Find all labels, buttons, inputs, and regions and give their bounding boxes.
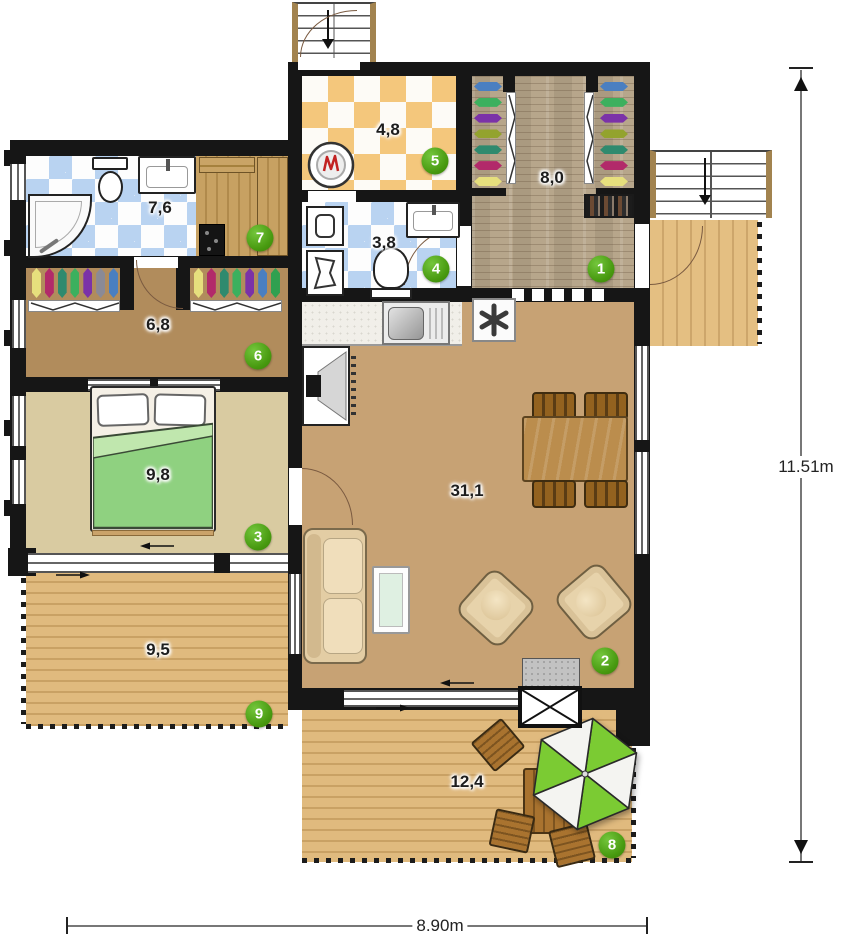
stove-box-icon bbox=[518, 686, 582, 728]
wc-sink-icon bbox=[406, 202, 460, 238]
shoe-rack-icon bbox=[584, 194, 634, 218]
sink-drainer bbox=[429, 308, 445, 339]
window-bedroom-1 bbox=[12, 396, 26, 446]
dimension-height-label: 11.51m bbox=[774, 456, 837, 478]
area-label-living: 31,1 bbox=[450, 481, 483, 501]
dimension-tick-right bbox=[646, 917, 648, 934]
area-label-bedroom: 9,8 bbox=[146, 465, 170, 485]
room-badge-2: 2 bbox=[592, 648, 619, 675]
slide-arrow-right-icon bbox=[56, 570, 90, 580]
wall-pilaster bbox=[4, 420, 12, 436]
closet-hangers bbox=[194, 268, 280, 298]
toilet-icon bbox=[98, 171, 123, 203]
folding-door-icon bbox=[506, 92, 516, 184]
dimension-arrow-down-icon bbox=[794, 840, 808, 861]
slide-arrow-left-icon bbox=[440, 678, 474, 688]
area-label-bathroom: 7,6 bbox=[148, 198, 172, 218]
wall-pilaster bbox=[4, 500, 12, 516]
toilet-tank-icon bbox=[92, 157, 128, 170]
laundry-icon bbox=[308, 252, 342, 294]
dimension-cap-top bbox=[789, 67, 813, 69]
closet-stub-left bbox=[120, 256, 134, 310]
kitchen-sink-icon bbox=[382, 301, 450, 345]
dimension-line-horizontal bbox=[66, 925, 648, 927]
area-label-hall: 8,0 bbox=[540, 168, 564, 188]
window-terrace-west bbox=[289, 574, 301, 654]
stove-icon bbox=[472, 298, 516, 342]
room-badge-1: 1 bbox=[588, 256, 615, 283]
faucet-icon bbox=[432, 205, 436, 215]
sliding-door-living bbox=[344, 690, 522, 707]
area-label-wc: 3,8 bbox=[372, 233, 396, 253]
area-label-terrace-south: 12,4 bbox=[450, 772, 483, 792]
sink-icon bbox=[138, 156, 196, 194]
fireplace-vent bbox=[351, 356, 356, 418]
wall-pilaster bbox=[4, 240, 12, 256]
door-opening-bedroom bbox=[289, 468, 302, 525]
hall-closet-stub-left bbox=[503, 62, 515, 92]
faucet-icon bbox=[166, 159, 170, 171]
folding-door-icon bbox=[584, 92, 594, 184]
hall-closet-bottom-left bbox=[472, 188, 506, 196]
bed-footboard bbox=[92, 530, 214, 536]
porch-down-arrow-icon bbox=[704, 158, 706, 202]
bed-icon bbox=[90, 386, 216, 532]
room-badge-5: 5 bbox=[422, 148, 449, 175]
stairs-porch bbox=[650, 150, 772, 218]
floor-plan: 8,0 31,1 9,8 3,8 4,8 6,8 7,6 12,4 9,5 1 … bbox=[0, 0, 850, 934]
fireplace-icon bbox=[302, 346, 350, 426]
window-living-1 bbox=[635, 346, 649, 440]
area-label-hallway: 6,8 bbox=[146, 315, 170, 335]
wall-bed-window-mid bbox=[214, 553, 230, 573]
pass-through-opening bbox=[512, 289, 608, 301]
window-bathroom bbox=[10, 164, 26, 200]
entrance-door-opening bbox=[635, 224, 649, 288]
dimension-arrow-up-icon bbox=[794, 70, 808, 91]
window-bedroom-2 bbox=[12, 460, 26, 504]
wc-toilet-icon bbox=[373, 247, 409, 289]
laundry-basket-icon bbox=[306, 250, 344, 296]
sauna-stove-icon bbox=[307, 141, 355, 189]
room-badge-9: 9 bbox=[246, 701, 273, 728]
room-badge-4: 4 bbox=[423, 256, 450, 283]
room-badge-7: 7 bbox=[247, 225, 274, 252]
sauna-bench-top bbox=[199, 157, 255, 173]
sauna-exterior-door bbox=[298, 58, 360, 70]
wardrobe-hangers bbox=[600, 82, 628, 186]
wc-toilet-tank-icon bbox=[370, 288, 412, 299]
area-label-terrace-west: 9,5 bbox=[146, 640, 170, 660]
room-badge-8: 8 bbox=[599, 832, 626, 859]
wardrobe-hangers bbox=[474, 82, 502, 186]
sofa-icon bbox=[303, 528, 367, 664]
window-hallway bbox=[12, 300, 26, 348]
umbrella-icon bbox=[525, 714, 645, 834]
room-badge-3: 3 bbox=[245, 524, 272, 551]
sauna-heater-icon bbox=[199, 224, 225, 256]
door-opening-sauna bbox=[308, 191, 356, 202]
dimension-width-label: 8.90m bbox=[412, 915, 467, 934]
slide-arrow-right-icon bbox=[376, 703, 410, 713]
room-badge-6: 6 bbox=[245, 343, 272, 370]
dining-chair-icon bbox=[532, 480, 576, 508]
coffee-table-icon bbox=[372, 566, 410, 634]
bedroom-window-small bbox=[230, 553, 288, 573]
wall-north-left bbox=[10, 140, 302, 156]
hall-closet-stub-right bbox=[586, 62, 598, 92]
slide-arrow-left-icon bbox=[140, 541, 174, 551]
terrace-west-left-edge bbox=[21, 578, 26, 724]
dining-table-icon bbox=[522, 416, 628, 482]
area-label-sauna: 4,8 bbox=[376, 120, 400, 140]
washing-machine-icon bbox=[306, 206, 344, 246]
hearth-plate-icon bbox=[522, 658, 580, 688]
folding-door-icon bbox=[190, 300, 282, 312]
dimension-cap-bottom bbox=[789, 861, 813, 863]
folding-door-icon bbox=[28, 300, 120, 312]
dining-chair-icon bbox=[584, 480, 628, 508]
closet-hangers bbox=[32, 268, 118, 298]
dimension-tick-left bbox=[66, 917, 68, 934]
window-living-2 bbox=[635, 452, 649, 554]
wall-pilaster bbox=[4, 330, 12, 346]
porch-deck-edge bbox=[757, 222, 762, 344]
